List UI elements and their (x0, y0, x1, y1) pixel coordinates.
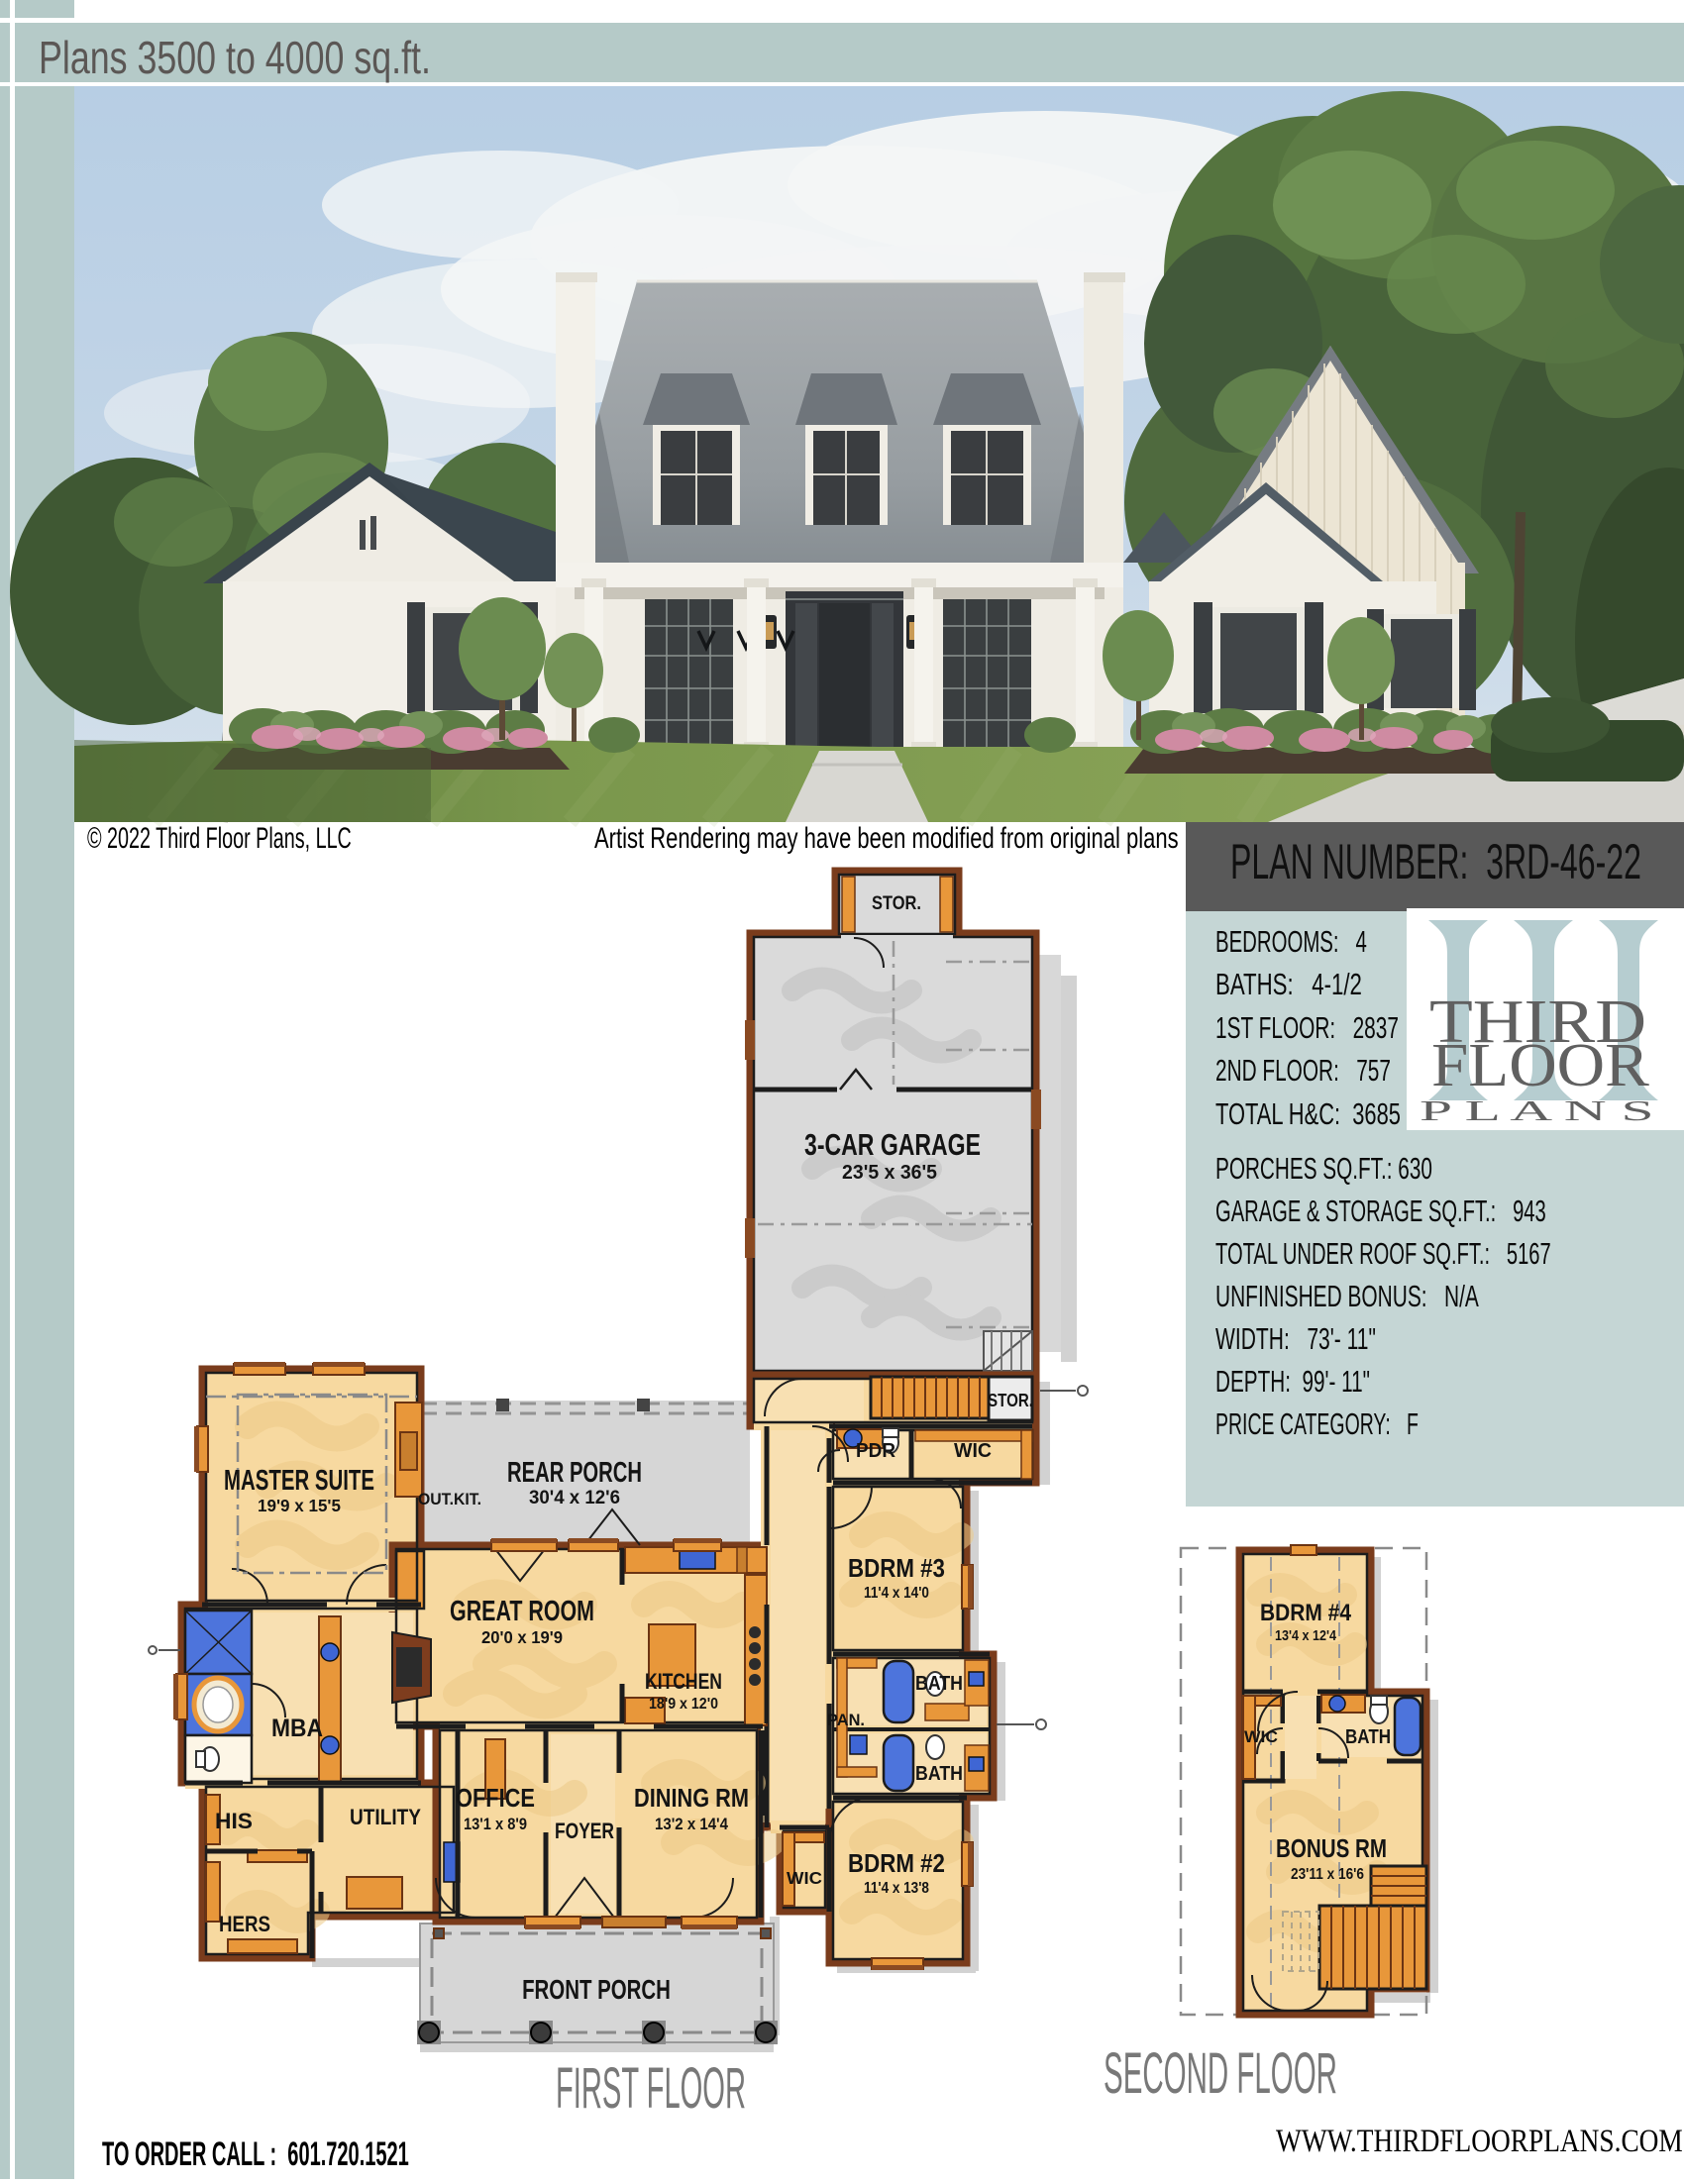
svg-text:BATHS: 4-1/2: BATHS: 4-1/2 (1215, 967, 1362, 1000)
svg-text:BATH: BATH (915, 1763, 963, 1785)
svg-text:GREAT ROOM: GREAT ROOM (450, 1596, 594, 1627)
svg-text:FRONT PORCH: FRONT PORCH (522, 1975, 671, 2006)
svg-text:FIRST FLOOR: FIRST FLOOR (556, 2055, 746, 2121)
svg-text:MASTER SUITE: MASTER SUITE (224, 1465, 374, 1497)
svg-text:11'4 x 14'0: 11'4 x 14'0 (864, 1585, 929, 1602)
svg-text:PRICE CATEGORY: F: PRICE CATEGORY: F (1215, 1408, 1419, 1442)
svg-text:WWW.THIRDFLOORPLANS.COM: WWW.THIRDFLOORPLANS.COM (1276, 2123, 1683, 2159)
svg-text:23'5 x 36'5: 23'5 x 36'5 (842, 1162, 937, 1184)
svg-text:2ND FLOOR: 757: 2ND FLOOR: 757 (1215, 1053, 1391, 1088)
svg-text:STOR.: STOR. (988, 1391, 1033, 1411)
svg-text:Plans 3500 to 4000 sq.ft.: Plans 3500 to 4000 sq.ft. (39, 33, 431, 83)
svg-text:BATH: BATH (915, 1673, 963, 1695)
svg-text:PORCHES SQ.FT.: 630: PORCHES SQ.FT.: 630 (1215, 1151, 1432, 1186)
svg-text:PLAN NUMBER: 3RD-46-22: PLAN NUMBER: 3RD-46-22 (1230, 834, 1641, 889)
svg-text:1ST FLOOR: 2837: 1ST FLOOR: 2837 (1215, 1010, 1399, 1045)
svg-text:BATH: BATH (1345, 1725, 1391, 1748)
svg-text:BDRM #2: BDRM #2 (848, 1849, 945, 1878)
svg-text:TO ORDER CALL : 601.720.1521: TO ORDER CALL : 601.720.1521 (102, 2135, 409, 2173)
svg-text:13'2 x 14'4: 13'2 x 14'4 (655, 1815, 728, 1833)
svg-text:STOR.: STOR. (872, 892, 921, 913)
svg-text:20'0 x 19'9: 20'0 x 19'9 (481, 1626, 563, 1647)
svg-text:OFFICE: OFFICE (456, 1784, 535, 1813)
svg-text:BDRM #4: BDRM #4 (1260, 1600, 1351, 1626)
svg-text:19'9 x 15'5: 19'9 x 15'5 (258, 1496, 341, 1516)
svg-text:WIC: WIC (787, 1867, 822, 1888)
svg-text:UTILITY: UTILITY (350, 1806, 421, 1830)
svg-text:BONUS RM: BONUS RM (1276, 1834, 1387, 1863)
svg-text:BEDROOMS: 4: BEDROOMS: 4 (1215, 924, 1367, 959)
svg-text:13'4 x 12'4: 13'4 x 12'4 (1275, 1626, 1336, 1643)
svg-text:FOYER: FOYER (555, 1820, 614, 1843)
svg-text:3-CAR GARAGE: 3-CAR GARAGE (804, 1127, 981, 1162)
svg-text:© 2022 Third Floor Plans, LLC: © 2022 Third Floor Plans, LLC (87, 822, 352, 855)
svg-text:REAR PORCH: REAR PORCH (507, 1456, 642, 1488)
svg-text:KITCHEN: KITCHEN (645, 1670, 722, 1694)
svg-text:PAN.: PAN. (827, 1711, 865, 1729)
svg-text:SECOND FLOOR: SECOND FLOOR (1104, 2040, 1337, 2106)
svg-text:WIDTH: 73'- 11": WIDTH: 73'- 11" (1215, 1321, 1376, 1356)
svg-text:TOTAL UNDER ROOF SQ.FT.: 516: TOTAL UNDER ROOF SQ.FT.: 5167 (1215, 1236, 1551, 1272)
svg-text:TOTAL H&C: 3685: TOTAL H&C: 3685 (1215, 1096, 1401, 1131)
svg-text:18'9 x 12'0: 18'9 x 12'0 (649, 1695, 718, 1713)
svg-text:23'11 x 16'6: 23'11 x 16'6 (1291, 1866, 1364, 1883)
svg-text:UNFINISHED BONUS: N/A: UNFINISHED BONUS: N/A (1215, 1279, 1479, 1313)
svg-text:WIC: WIC (954, 1440, 992, 1462)
svg-text:PDR: PDR (856, 1440, 895, 1463)
svg-text:30'4 x 12'6: 30'4 x 12'6 (529, 1487, 620, 1508)
svg-text:DINING RM: DINING RM (634, 1784, 749, 1813)
svg-text:DEPTH: 99'- 11": DEPTH: 99'- 11" (1215, 1364, 1370, 1399)
svg-text:OUT.KIT.: OUT.KIT. (418, 1490, 481, 1508)
svg-text:MBA: MBA (271, 1715, 323, 1742)
svg-text:GARAGE & STORAGE SQ.FT.: 943: GARAGE & STORAGE SQ.FT.: 943 (1215, 1194, 1546, 1229)
svg-text:WIC: WIC (1244, 1726, 1278, 1746)
svg-text:13'1 x 8'9: 13'1 x 8'9 (464, 1816, 527, 1833)
svg-text:BDRM #3: BDRM #3 (848, 1554, 945, 1583)
svg-text:Artist Rendering may have been: Artist Rendering may have been modified … (594, 821, 1179, 855)
svg-text:HIS: HIS (215, 1809, 253, 1833)
svg-text:HERS: HERS (219, 1914, 270, 1937)
svg-text:FLOOR: FLOOR (1431, 1031, 1649, 1100)
svg-text:11'4 x 13'8: 11'4 x 13'8 (864, 1880, 929, 1897)
svg-text:P L A N S: P L A N S (1420, 1096, 1654, 1127)
